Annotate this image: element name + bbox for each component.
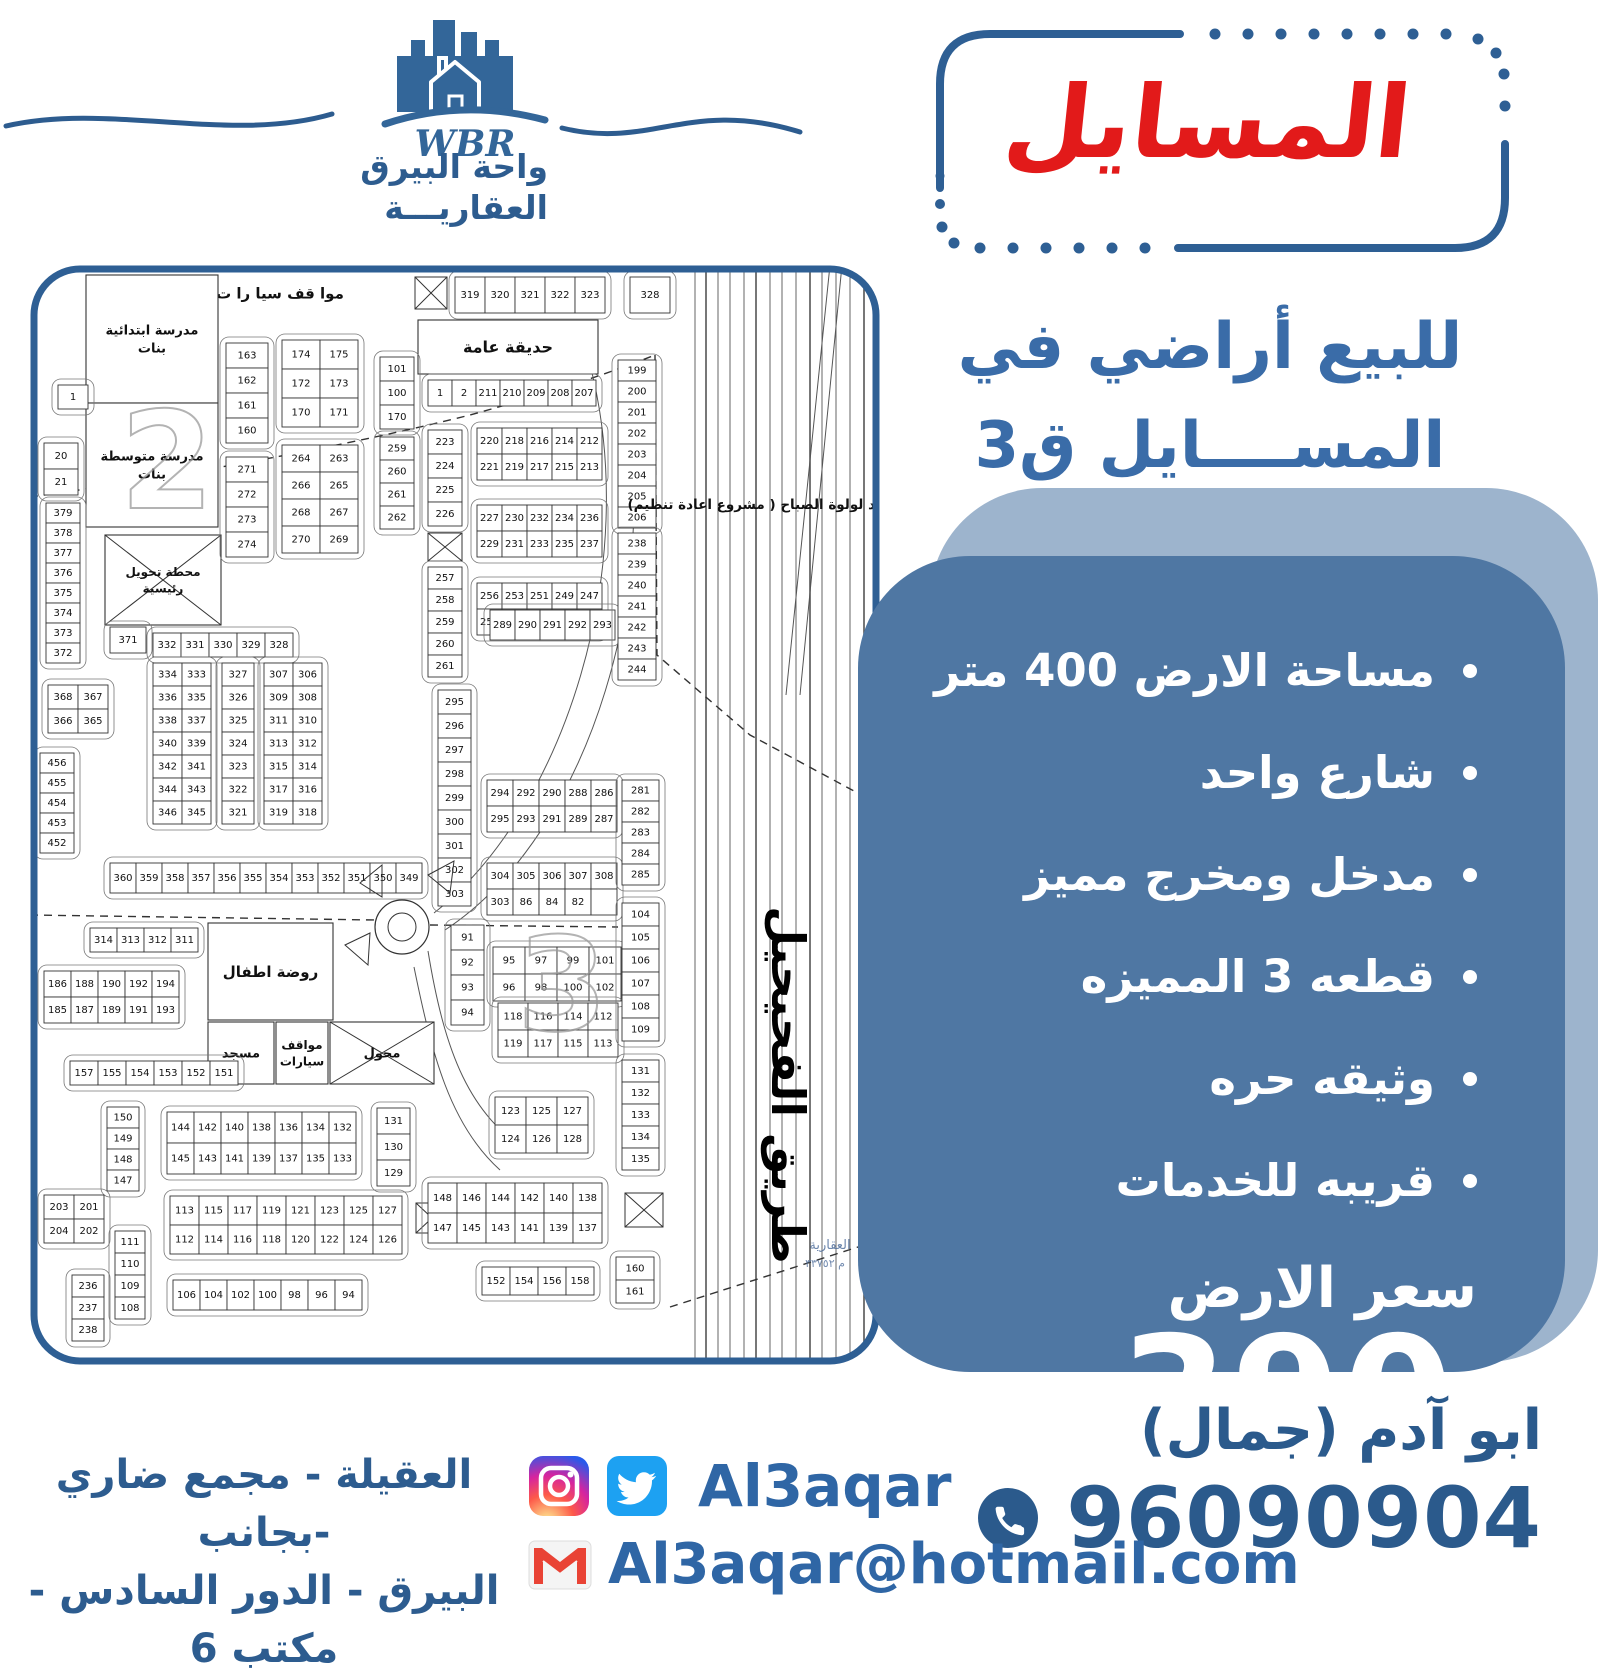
svg-text:213: 213 [580,462,599,473]
svg-text:215: 215 [555,462,574,473]
svg-text:حديقة عامة: حديقة عامة [463,338,553,357]
svg-text:138: 138 [578,1193,597,1204]
svg-text:141: 141 [520,1223,539,1234]
svg-text:379: 379 [53,508,72,519]
svg-text:157: 157 [74,1068,93,1079]
bullet-dot [1463,766,1477,780]
svg-text:137: 137 [578,1223,597,1234]
svg-text:298: 298 [445,769,464,780]
svg-text:295: 295 [490,814,509,825]
svg-text:113: 113 [175,1206,194,1217]
svg-text:346: 346 [158,808,177,819]
address-line2: البيرق - الدور السادس - مكتب 6 [16,1562,512,1678]
feature-item: وثيقه حره [918,1052,1477,1105]
address-block: العقيلة - مجمع ضاري -بجانب البيرق - الدو… [16,1446,512,1678]
svg-text:210: 210 [502,388,521,399]
svg-text:126: 126 [378,1235,397,1246]
svg-text:289: 289 [568,814,587,825]
svg-text:221: 221 [480,462,499,473]
svg-text:285: 285 [631,870,650,881]
svg-text:مسجد: مسجد [222,1047,260,1062]
svg-text:105: 105 [631,933,650,944]
svg-text:266: 266 [291,481,310,492]
svg-text:140: 140 [549,1193,568,1204]
svg-text:116: 116 [233,1235,252,1246]
svg-text:216: 216 [530,436,549,447]
svg-text:152: 152 [486,1276,505,1287]
svg-text:طريق الفحيحيل: طريق الفحيحيل [761,906,815,1264]
svg-text:259: 259 [435,617,454,628]
svg-text:رئيسية: رئيسية [143,582,184,596]
svg-text:321: 321 [520,290,539,301]
svg-text:372: 372 [53,648,72,659]
svg-text:307: 307 [269,670,288,681]
subtitle-line2: المســــايل ق3 [880,397,1540,496]
svg-text:345: 345 [187,808,206,819]
feature-item: قريبه للخدمات [918,1154,1477,1207]
svg-text:100: 100 [387,388,406,399]
feature-item: مدخل ومخرج مميز [918,848,1477,901]
email-icon[interactable] [528,1540,592,1590]
svg-text:94: 94 [342,1290,355,1301]
svg-text:350: 350 [373,873,392,884]
svg-text:170: 170 [387,412,406,423]
svg-text:148: 148 [113,1155,132,1166]
svg-text:374: 374 [53,608,72,619]
svg-text:126: 126 [532,1134,551,1145]
svg-text:151: 151 [214,1068,233,1079]
svg-text:187: 187 [75,1005,94,1016]
svg-text:290: 290 [518,620,537,631]
svg-text:110: 110 [120,1259,139,1270]
svg-text:265: 265 [329,481,348,492]
svg-text:188: 188 [75,979,94,990]
svg-text:122: 122 [320,1235,339,1246]
feature-text: شارع واحد [1200,746,1435,799]
wave-decoration-right [552,96,822,156]
company-logo: WBR [350,2,580,166]
svg-text:318: 318 [298,808,317,819]
svg-text:291: 291 [543,620,562,631]
svg-text:160: 160 [237,426,256,437]
svg-text:317: 317 [269,785,288,796]
svg-text:174: 174 [291,350,310,361]
svg-text:336: 336 [158,693,177,704]
svg-text:117: 117 [233,1206,252,1217]
svg-text:150: 150 [113,1113,132,1124]
svg-text:190: 190 [102,979,121,990]
svg-text:186: 186 [48,979,67,990]
svg-text:141: 141 [225,1154,244,1165]
svg-text:214: 214 [555,436,574,447]
svg-text:137: 137 [279,1154,298,1165]
svg-text:133: 133 [333,1154,352,1165]
svg-text:325: 325 [228,716,247,727]
svg-text:170: 170 [291,408,310,419]
svg-text:235: 235 [555,539,574,550]
svg-text:360: 360 [113,873,132,884]
svg-text:136: 136 [279,1123,298,1134]
email-address[interactable]: Al3aqar@hotmail.com [608,1532,1300,1597]
svg-text:108: 108 [631,1002,650,1013]
svg-text:261: 261 [387,490,406,501]
svg-text:194: 194 [156,979,175,990]
svg-text:201: 201 [79,1202,98,1213]
svg-text:154: 154 [514,1276,533,1287]
svg-text:208: 208 [550,388,569,399]
svg-text:84: 84 [546,897,559,908]
svg-text:258: 258 [435,595,454,606]
subtitle-line1: للبيع أراضي في [880,298,1540,397]
svg-text:102: 102 [231,1290,250,1301]
svg-text:130: 130 [384,1142,403,1153]
svg-text:175: 175 [329,350,348,361]
svg-text:240: 240 [627,581,646,592]
feature-text: وثيقه حره [1209,1052,1435,1105]
svg-text:241: 241 [627,602,646,613]
svg-text:247: 247 [580,591,599,602]
svg-text:376: 376 [53,568,72,579]
svg-text:1: 1 [70,392,76,403]
svg-text:107: 107 [631,979,650,990]
svg-text:292: 292 [568,620,587,631]
svg-text:236: 236 [78,1281,97,1292]
svg-text:133: 133 [631,1110,650,1121]
svg-text:296: 296 [445,721,464,732]
social-block: Al3aqar Al3aqar@hotmail.com [528,1452,1300,1609]
svg-text:253: 253 [505,591,524,602]
svg-text:149: 149 [113,1134,132,1145]
svg-text:273: 273 [237,515,256,526]
svg-text:135: 135 [631,1154,650,1165]
svg-text:204: 204 [49,1226,68,1237]
svg-text:140: 140 [225,1123,244,1134]
svg-text:230: 230 [505,513,524,524]
svg-text:301: 301 [445,841,464,852]
svg-text:294: 294 [490,788,509,799]
svg-text:86: 86 [520,897,533,908]
svg-text:132: 132 [333,1123,352,1134]
svg-text:131: 131 [384,1116,403,1127]
svg-text:125: 125 [532,1106,551,1117]
svg-text:185: 185 [48,1005,67,1016]
svg-text:371: 371 [118,635,137,646]
svg-text:115: 115 [204,1206,223,1217]
svg-text:291: 291 [542,814,561,825]
subtitle: للبيع أراضي في المســــايل ق3 [880,298,1540,496]
svg-text:323: 323 [580,290,599,301]
svg-text:269: 269 [329,535,348,546]
svg-text:322: 322 [228,785,247,796]
svg-text:237: 237 [580,539,599,550]
svg-text:93: 93 [461,983,474,994]
svg-text:262: 262 [387,513,406,524]
svg-text:م ٣٣٧٥٢: م ٣٣٧٥٢ [805,1257,845,1270]
svg-text:232: 232 [530,513,549,524]
svg-text:209: 209 [526,388,545,399]
svg-text:132: 132 [631,1088,650,1099]
svg-text:288: 288 [568,788,587,799]
svg-text:340: 340 [158,739,177,750]
svg-text:145: 145 [171,1154,190,1165]
svg-text:153: 153 [158,1068,177,1079]
svg-text:306: 306 [542,871,561,882]
feature-item: مساحة الارض 400 متر [918,644,1477,697]
svg-text:91: 91 [461,933,474,944]
svg-text:229: 229 [480,539,499,550]
svg-text:314: 314 [298,762,317,773]
svg-text:203: 203 [49,1202,68,1213]
svg-text:308: 308 [594,871,613,882]
svg-text:295: 295 [445,697,464,708]
svg-text:234: 234 [555,513,574,524]
svg-text:109: 109 [120,1281,139,1292]
svg-text:139: 139 [252,1154,271,1165]
svg-text:204: 204 [627,471,646,482]
svg-text:201: 201 [627,408,646,419]
svg-text:119: 119 [262,1206,281,1217]
svg-text:202: 202 [79,1226,98,1237]
svg-text:162: 162 [237,376,256,387]
svg-text:مدرسة ابتدائية: مدرسة ابتدائية [106,323,199,338]
svg-text:324: 324 [228,739,247,750]
svg-text:231: 231 [505,539,524,550]
svg-text:333: 333 [187,670,206,681]
svg-text:242: 242 [627,623,646,634]
svg-text:310: 310 [298,716,317,727]
svg-text:355: 355 [243,873,262,884]
svg-text:282: 282 [631,807,650,818]
svg-text:330: 330 [213,640,232,651]
svg-text:143: 143 [491,1223,510,1234]
svg-text:129: 129 [384,1168,403,1179]
svg-text:203: 203 [627,450,646,461]
svg-text:307: 307 [568,871,587,882]
svg-text:220: 220 [480,436,499,447]
svg-text:312: 312 [148,935,167,946]
svg-text:311: 311 [269,716,288,727]
svg-text:سيارات: سيارات [280,1055,324,1069]
svg-text:309: 309 [269,693,288,704]
svg-text:104: 104 [204,1290,223,1301]
svg-text:118: 118 [262,1235,281,1246]
wave-decoration-left [0,96,340,156]
svg-text:134: 134 [631,1132,650,1143]
svg-text:290: 290 [542,788,561,799]
svg-text:271: 271 [237,465,256,476]
svg-text:82: 82 [572,897,585,908]
svg-text:128: 128 [563,1134,582,1145]
svg-text:224: 224 [435,461,454,472]
svg-text:171: 171 [329,408,348,419]
svg-text:334: 334 [158,670,177,681]
svg-text:327: 327 [228,670,247,681]
page-title: المسايل [924,64,1491,181]
svg-text:161: 161 [237,401,256,412]
svg-text:377: 377 [53,548,72,559]
feature-text: مدخل ومخرج مميز [1024,848,1435,901]
svg-text:144: 144 [491,1193,510,1204]
svg-text:212: 212 [580,436,599,447]
svg-text:100: 100 [258,1290,277,1301]
svg-text:452: 452 [47,838,66,849]
svg-text:127: 127 [378,1206,397,1217]
svg-text:337: 337 [187,716,206,727]
social-handle[interactable]: Al3aqar [698,1452,952,1520]
company-name-line2: العقاريـــة [330,187,548,228]
svg-text:121: 121 [291,1206,310,1217]
svg-text:152: 152 [186,1068,205,1079]
svg-text:297: 297 [445,745,464,756]
svg-text:191: 191 [129,1005,148,1016]
svg-text:316: 316 [298,785,317,796]
svg-text:بنات: بنات [138,342,166,357]
svg-text:106: 106 [177,1290,196,1301]
svg-text:146: 146 [462,1193,481,1204]
svg-text:142: 142 [520,1193,539,1204]
svg-text:238: 238 [78,1325,97,1336]
bullet-dot [1463,664,1477,678]
svg-text:264: 264 [291,454,310,465]
svg-text:329: 329 [241,640,260,651]
svg-text:375: 375 [53,588,72,599]
social-row-handles[interactable]: Al3aqar [528,1452,1300,1520]
svg-text:111: 111 [120,1237,139,1248]
svg-text:320: 320 [490,290,509,301]
svg-text:263: 263 [329,454,348,465]
svg-text:322: 322 [550,290,569,301]
svg-text:335: 335 [187,693,206,704]
svg-text:268: 268 [291,508,310,519]
svg-text:284: 284 [631,849,650,860]
svg-text:308: 308 [298,693,317,704]
svg-text:محطة تحويل: محطة تحويل [125,565,200,580]
svg-text:106: 106 [631,956,650,967]
svg-text:261: 261 [435,661,454,672]
twitter-icon[interactable] [606,1455,668,1517]
svg-text:96: 96 [315,1290,328,1301]
svg-text:العقارية: العقارية [809,1238,850,1253]
svg-text:236: 236 [580,513,599,524]
svg-text:98: 98 [288,1290,301,1301]
features-panel: مساحة الارض 400 مترشارع واحدمدخل ومخرج م… [858,556,1565,1372]
svg-text:2: 2 [120,383,214,540]
svg-text:315: 315 [269,762,288,773]
svg-text:319: 319 [269,808,288,819]
svg-text:314: 314 [94,935,113,946]
svg-text:148: 148 [433,1193,452,1204]
svg-text:359: 359 [139,873,158,884]
svg-text:20: 20 [55,451,68,462]
svg-text:211: 211 [478,388,497,399]
svg-text:189: 189 [102,1005,121,1016]
svg-text:225: 225 [435,485,454,496]
svg-text:207: 207 [574,388,593,399]
svg-text:328: 328 [269,640,288,651]
svg-text:226: 226 [435,509,454,520]
svg-text:287: 287 [594,814,613,825]
svg-text:283: 283 [631,828,650,839]
svg-text:274: 274 [237,540,256,551]
svg-text:455: 455 [47,778,66,789]
svg-text:112: 112 [175,1235,194,1246]
svg-text:373: 373 [53,628,72,639]
svg-text:292: 292 [516,788,535,799]
feature-item: شارع واحد [918,746,1477,799]
svg-text:256: 256 [480,591,499,602]
svg-text:366: 366 [53,716,72,727]
svg-text:453: 453 [47,818,66,829]
svg-text:259: 259 [387,444,406,455]
svg-text:237: 237 [78,1303,97,1314]
svg-text:د لولوة الصباح ( مشروع اعادة ت: د لولوة الصباح ( مشروع اعادة تنظيم) [627,497,875,513]
svg-text:193: 193 [156,1005,175,1016]
bullet-dot [1463,1072,1477,1086]
svg-text:147: 147 [433,1223,452,1234]
social-row-email[interactable]: Al3aqar@hotmail.com [528,1532,1300,1597]
title-frame: المسايل [930,26,1515,256]
svg-text:299: 299 [445,793,464,804]
svg-text:249: 249 [555,591,574,602]
svg-text:مواقف: مواقف [281,1038,322,1053]
svg-text:96: 96 [503,983,516,994]
svg-text:192: 192 [129,979,148,990]
svg-text:202: 202 [627,429,646,440]
svg-text:217: 217 [530,462,549,473]
feature-item: قطعه 3 المميزه [918,950,1477,1003]
svg-text:260: 260 [435,639,454,650]
svg-text:131: 131 [631,1066,650,1077]
svg-text:354: 354 [269,873,288,884]
svg-text:244: 244 [627,665,646,676]
svg-text:124: 124 [501,1134,520,1145]
svg-text:114: 114 [204,1235,223,1246]
svg-text:2: 2 [461,388,467,399]
svg-text:321: 321 [228,808,247,819]
svg-text:144: 144 [171,1123,190,1134]
svg-text:238: 238 [627,539,646,550]
svg-text:94: 94 [461,1008,474,1019]
svg-text:267: 267 [329,508,348,519]
svg-text:147: 147 [113,1176,132,1187]
svg-text:358: 358 [165,873,184,884]
svg-text:154: 154 [130,1068,149,1079]
svg-text:260: 260 [387,467,406,478]
svg-text:312: 312 [298,739,317,750]
svg-text:326: 326 [228,693,247,704]
plots-map: موا قف سيا را تحديقة عامةمدرسة ابتدائيةب… [30,265,880,1365]
company-name-line1: واحة البيرق [330,146,548,187]
svg-text:123: 123 [320,1206,339,1217]
svg-text:21: 21 [55,477,68,488]
svg-text:108: 108 [120,1303,139,1314]
svg-text:328: 328 [640,290,659,301]
svg-text:313: 313 [121,935,140,946]
svg-text:311: 311 [175,935,194,946]
svg-text:353: 353 [295,873,314,884]
svg-text:155: 155 [102,1068,121,1079]
svg-text:109: 109 [631,1025,650,1036]
svg-text:289: 289 [493,620,512,631]
svg-text:139: 139 [549,1223,568,1234]
svg-text:357: 357 [191,873,210,884]
svg-text:156: 156 [542,1276,561,1287]
svg-text:351: 351 [347,873,366,884]
svg-text:304: 304 [490,871,509,882]
instagram-icon[interactable] [528,1455,590,1517]
svg-text:313: 313 [269,739,288,750]
svg-text:104: 104 [631,910,650,921]
